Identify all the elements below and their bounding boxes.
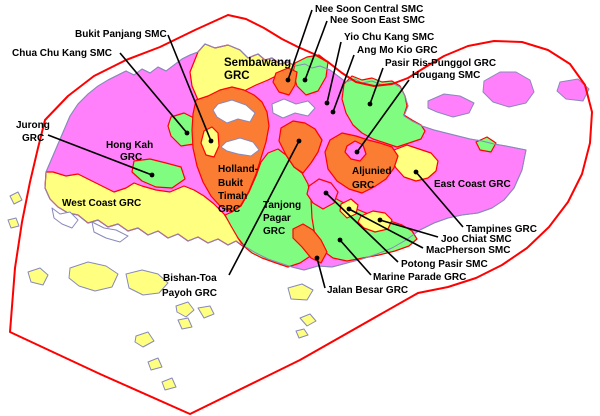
label-holland-bt-line-1: Holland- xyxy=(218,164,258,175)
dot-marine-parade xyxy=(338,238,343,243)
label-macpherson: MacPherson SMC xyxy=(426,245,510,256)
dot-chua-chu-kang xyxy=(185,131,190,136)
island-south-7 xyxy=(300,314,316,326)
label-hong-kah-line-2: GRC xyxy=(120,152,142,163)
label-chua-chu-kang: Chua Chu Kang SMC xyxy=(12,48,112,59)
label-aljunied-line-1: Aljunied xyxy=(352,166,391,177)
label-east-coast: East Coast GRC xyxy=(434,179,511,190)
dot-ang-mo-kio xyxy=(331,110,336,115)
dot-jurong xyxy=(150,173,155,178)
dot-nee-soon-east xyxy=(303,78,308,83)
island-west-tiny-2 xyxy=(8,218,19,228)
island-south-5 xyxy=(148,358,162,370)
island-south-1 xyxy=(176,302,194,317)
island-west-tiny-1 xyxy=(10,192,22,204)
label-holland-bt-line-4: GRC xyxy=(218,204,240,215)
island-south-3 xyxy=(178,318,192,329)
island-west-small xyxy=(28,268,48,285)
label-aljunied-line-2: GRC xyxy=(352,180,374,191)
island-south-2 xyxy=(198,306,214,318)
island-tekong xyxy=(483,72,534,107)
label-tanjong-pagar-line-1: Tanjong xyxy=(263,200,301,211)
dot-bukit-panjang xyxy=(209,139,214,144)
label-marine-parade: Marine Parade GRC xyxy=(373,272,466,283)
dot-nee-soon-central xyxy=(286,78,291,83)
label-jalan-besar: Jalan Besar GRC xyxy=(327,285,408,296)
label-jurong-line-2: GRC xyxy=(22,133,44,144)
label-hong-kah-line-1: Hong Kah xyxy=(106,140,153,151)
label-sembawang-line-1: Sembawang xyxy=(224,57,291,69)
island-south-6 xyxy=(162,378,176,390)
label-holland-bt-line-3: Timah xyxy=(218,191,247,202)
label-bishan-line-1: Bishan-Toa xyxy=(163,273,217,284)
label-joo-chiat: Joo Chiat SMC xyxy=(441,234,512,245)
island-jurong-a xyxy=(69,262,118,291)
label-bishan-line-2: Payoh GRC xyxy=(162,288,217,299)
map-canvas: Chua Chu Kang SMC Bukit Panjang SMC Juro… xyxy=(0,0,600,416)
label-sembawang-line-2: GRC xyxy=(224,70,250,82)
label-jurong-line-1: Jurong xyxy=(16,120,50,131)
dot-jalan-besar xyxy=(315,256,320,261)
island-south-8 xyxy=(296,329,308,338)
label-holland-bt-line-2: Bukit xyxy=(218,178,244,189)
label-yio-chu-kang: Yio Chu Kang SMC xyxy=(344,32,434,43)
dot-pasir-ris-punggol xyxy=(368,102,373,107)
dot-potong-pasir xyxy=(324,191,329,196)
label-ang-mo-kio: Ang Mo Kio GRC xyxy=(357,45,438,56)
dot-tampines xyxy=(414,170,419,175)
label-tanjong-pagar-line-2: Pagar xyxy=(263,213,291,224)
singapore-constituency-map: Chua Chu Kang SMC Bukit Panjang SMC Juro… xyxy=(0,0,600,416)
label-potong-pasir: Potong Pasir SMC xyxy=(401,259,488,270)
dot-hougang xyxy=(355,150,360,155)
label-nee-soon-central: Nee Soon Central SMC xyxy=(315,4,423,15)
dot-bishan-toa-payoh xyxy=(297,139,302,144)
island-sentosa xyxy=(288,284,313,300)
label-tanjong-pagar-line-3: GRC xyxy=(263,226,285,237)
dot-yio-chu-kang xyxy=(325,101,330,106)
label-nee-soon-east: Nee Soon East SMC xyxy=(330,15,425,26)
label-west-coast: West Coast GRC xyxy=(62,198,141,209)
island-ubin xyxy=(428,94,474,117)
island-south-4 xyxy=(135,332,154,347)
dot-joo-chiat xyxy=(378,218,383,223)
label-hougang: Hougang SMC xyxy=(412,70,480,81)
label-bukit-panjang: Bukit Panjang SMC xyxy=(75,29,167,40)
dot-macpherson xyxy=(347,207,352,212)
label-pasir-ris-punggol: Pasir Ris-Punggol GRC xyxy=(385,58,496,69)
